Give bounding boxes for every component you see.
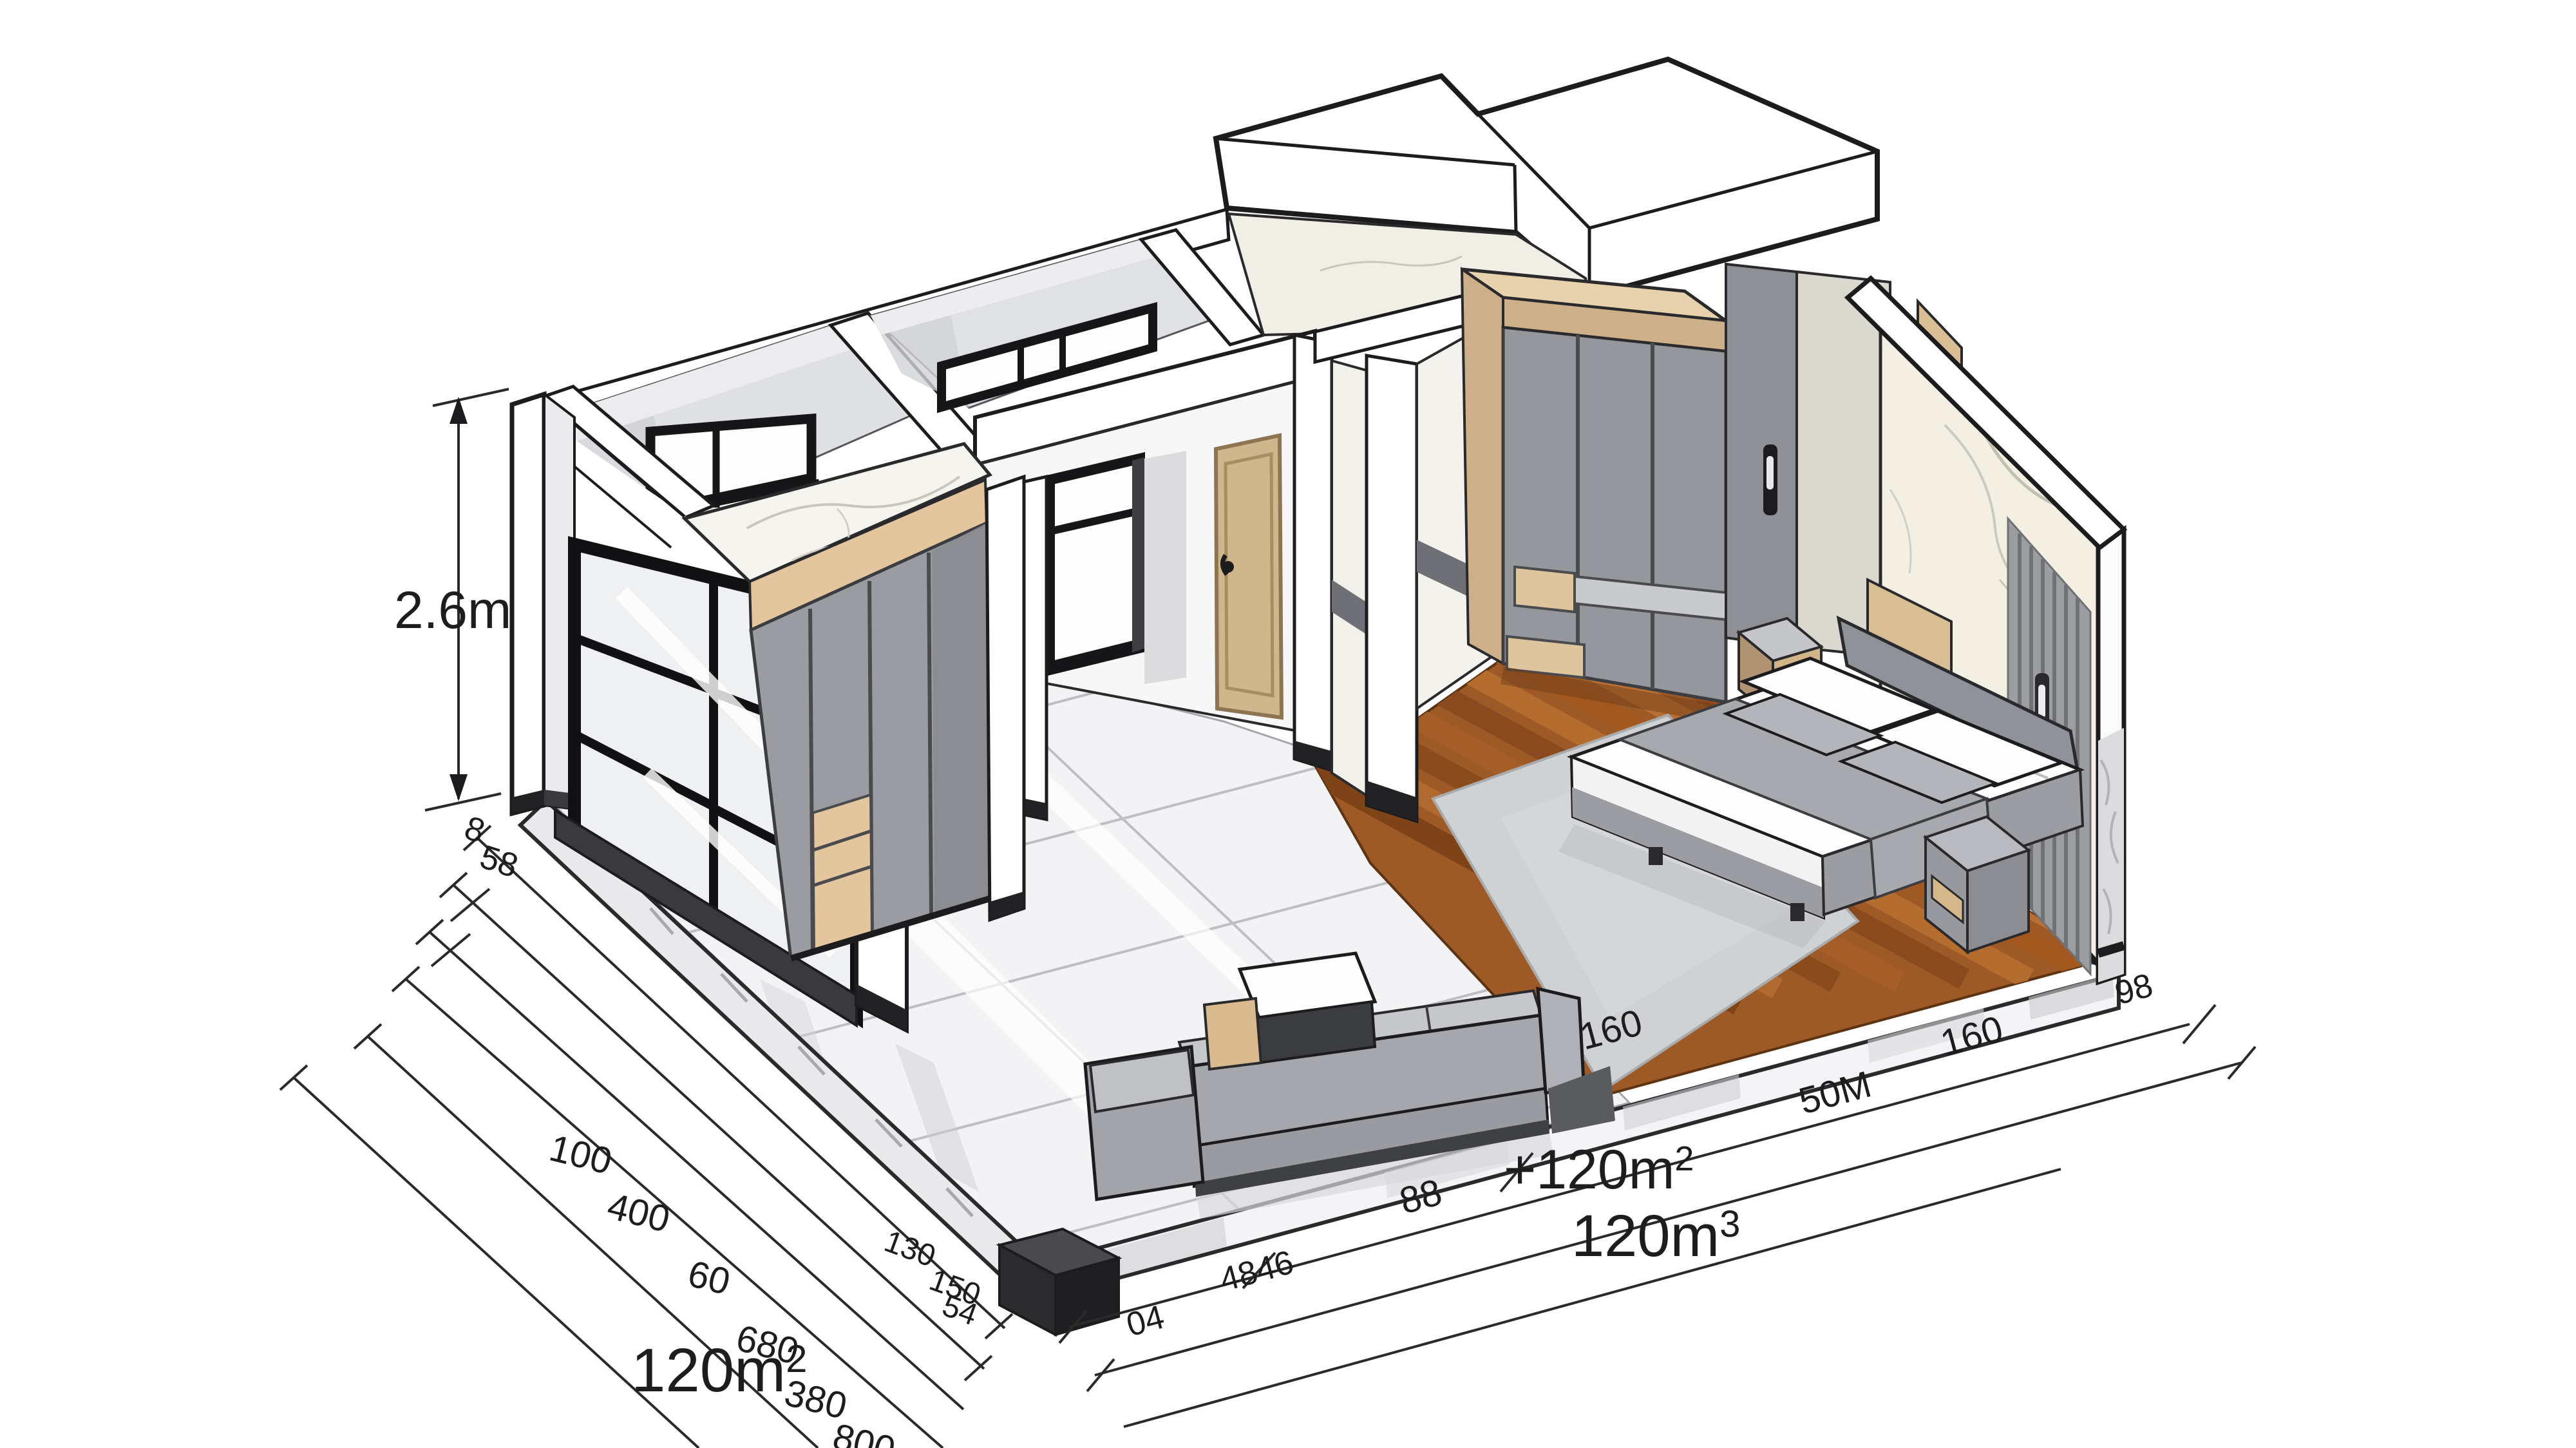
svg-text:120m3: 120m3: [1571, 1203, 1740, 1269]
svg-text:2.6m: 2.6m: [394, 581, 511, 640]
svg-text:+120m2: +120m2: [1504, 1139, 1694, 1201]
svg-text:120m2: 120m2: [631, 1336, 808, 1405]
